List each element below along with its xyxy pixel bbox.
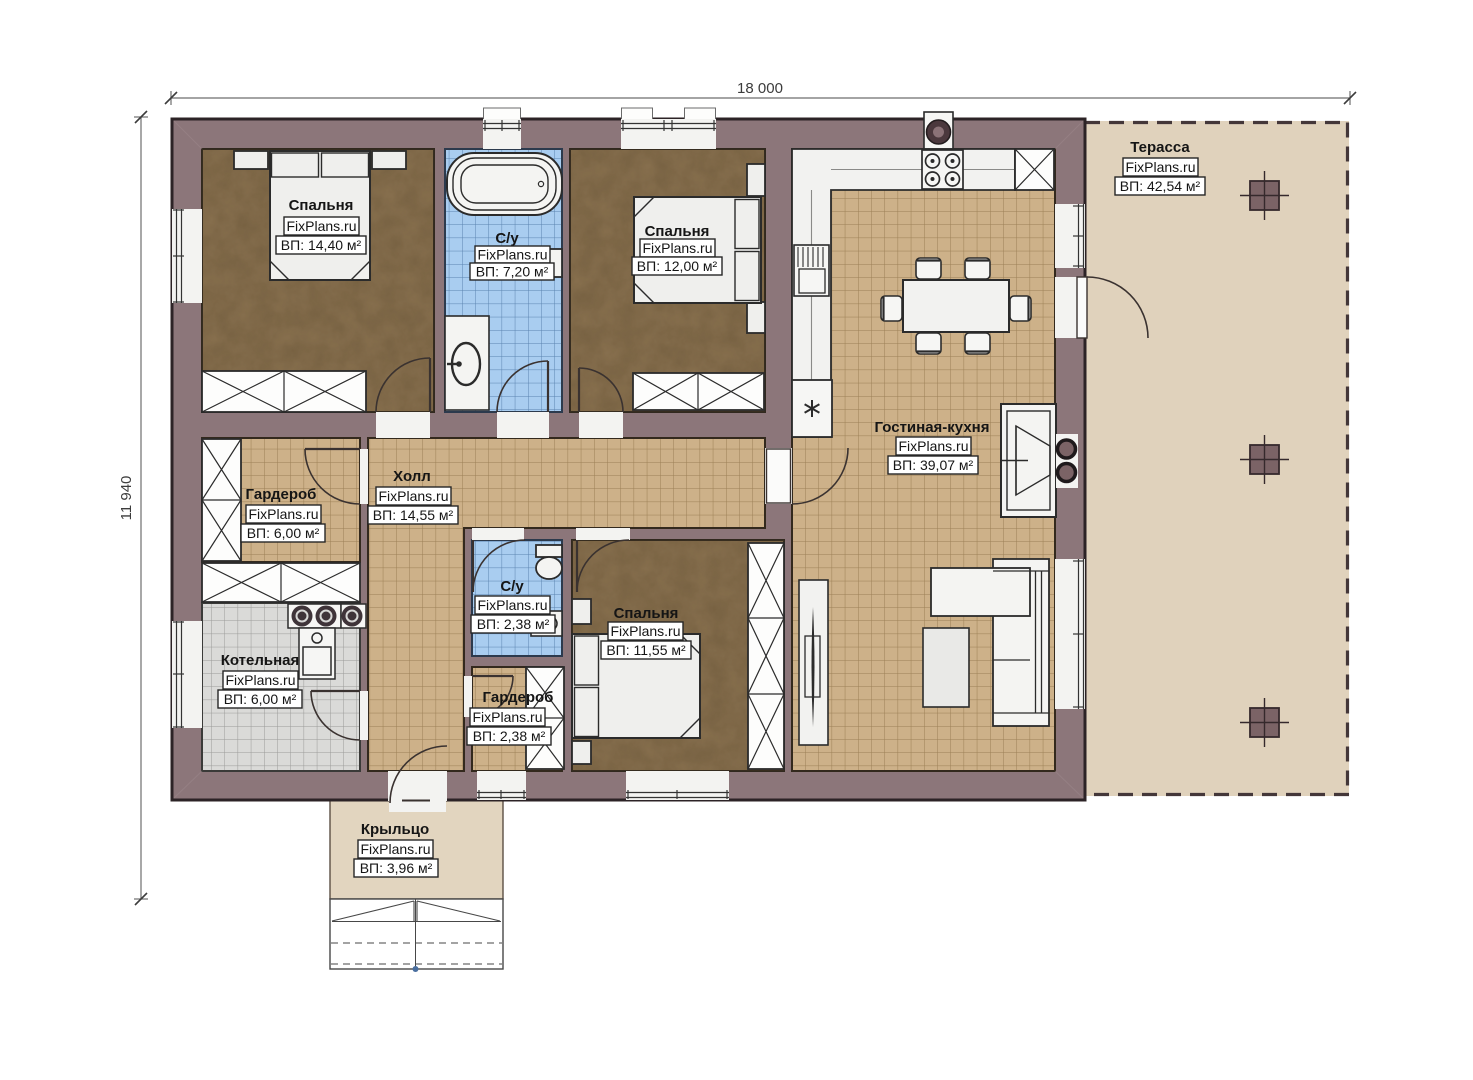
svg-text:FixPlans.ru: FixPlans.ru — [898, 438, 968, 454]
svg-text:FixPlans.ru: FixPlans.ru — [1125, 159, 1195, 175]
svg-text:ВП: 12,00 м²: ВП: 12,00 м² — [637, 258, 718, 274]
svg-text:ВП: 3,96 м²: ВП: 3,96 м² — [360, 860, 433, 876]
svg-text:Холл: Холл — [393, 468, 431, 485]
svg-text:Гостиная-кухня: Гостиная-кухня — [875, 419, 990, 436]
svg-text:ВП: 11,55 м²: ВП: 11,55 м² — [606, 642, 686, 658]
svg-text:Гардероб: Гардероб — [246, 486, 317, 503]
svg-text:ВП: 42,54 м²: ВП: 42,54 м² — [1120, 178, 1201, 194]
svg-text:С/у: С/у — [500, 578, 524, 595]
svg-text:Спальня: Спальня — [614, 605, 679, 622]
svg-text:Спальня: Спальня — [645, 223, 710, 240]
svg-text:Спальня: Спальня — [289, 197, 354, 214]
svg-text:Гардероб: Гардероб — [483, 689, 554, 706]
svg-text:ВП: 7,20 м²: ВП: 7,20 м² — [476, 264, 549, 280]
svg-text:ВП: 14,55 м²: ВП: 14,55 м² — [373, 507, 454, 523]
svg-text:ВП: 6,00 м²: ВП: 6,00 м² — [247, 525, 320, 541]
svg-text:ВП: 2,38 м²: ВП: 2,38 м² — [477, 616, 550, 632]
svg-text:FixPlans.ru: FixPlans.ru — [225, 672, 295, 688]
svg-text:ВП: 6,00 м²: ВП: 6,00 м² — [224, 691, 297, 707]
svg-text:ВП: 14,40 м²: ВП: 14,40 м² — [281, 237, 362, 253]
svg-text:Крыльцо: Крыльцо — [361, 821, 429, 838]
svg-text:FixPlans.ru: FixPlans.ru — [248, 506, 318, 522]
svg-text:ВП: 39,07 м²: ВП: 39,07 м² — [893, 457, 974, 473]
svg-text:ВП: 2,38 м²: ВП: 2,38 м² — [473, 728, 546, 744]
svg-text:FixPlans.ru: FixPlans.ru — [477, 597, 547, 613]
svg-text:Терасса: Терасса — [1130, 139, 1190, 156]
svg-text:С/у: С/у — [495, 230, 519, 247]
svg-text:FixPlans.ru: FixPlans.ru — [378, 488, 448, 504]
svg-text:FixPlans.ru: FixPlans.ru — [642, 240, 712, 256]
svg-text:FixPlans.ru: FixPlans.ru — [477, 247, 547, 263]
svg-text:FixPlans.ru: FixPlans.ru — [472, 709, 542, 725]
svg-text:Котельная: Котельная — [221, 652, 300, 669]
svg-text:FixPlans.ru: FixPlans.ru — [610, 623, 680, 639]
svg-text:FixPlans.ru: FixPlans.ru — [286, 218, 356, 234]
svg-text:18 000: 18 000 — [737, 80, 783, 97]
svg-text:FixPlans.ru: FixPlans.ru — [360, 841, 430, 857]
svg-text:11 940: 11 940 — [118, 476, 135, 521]
